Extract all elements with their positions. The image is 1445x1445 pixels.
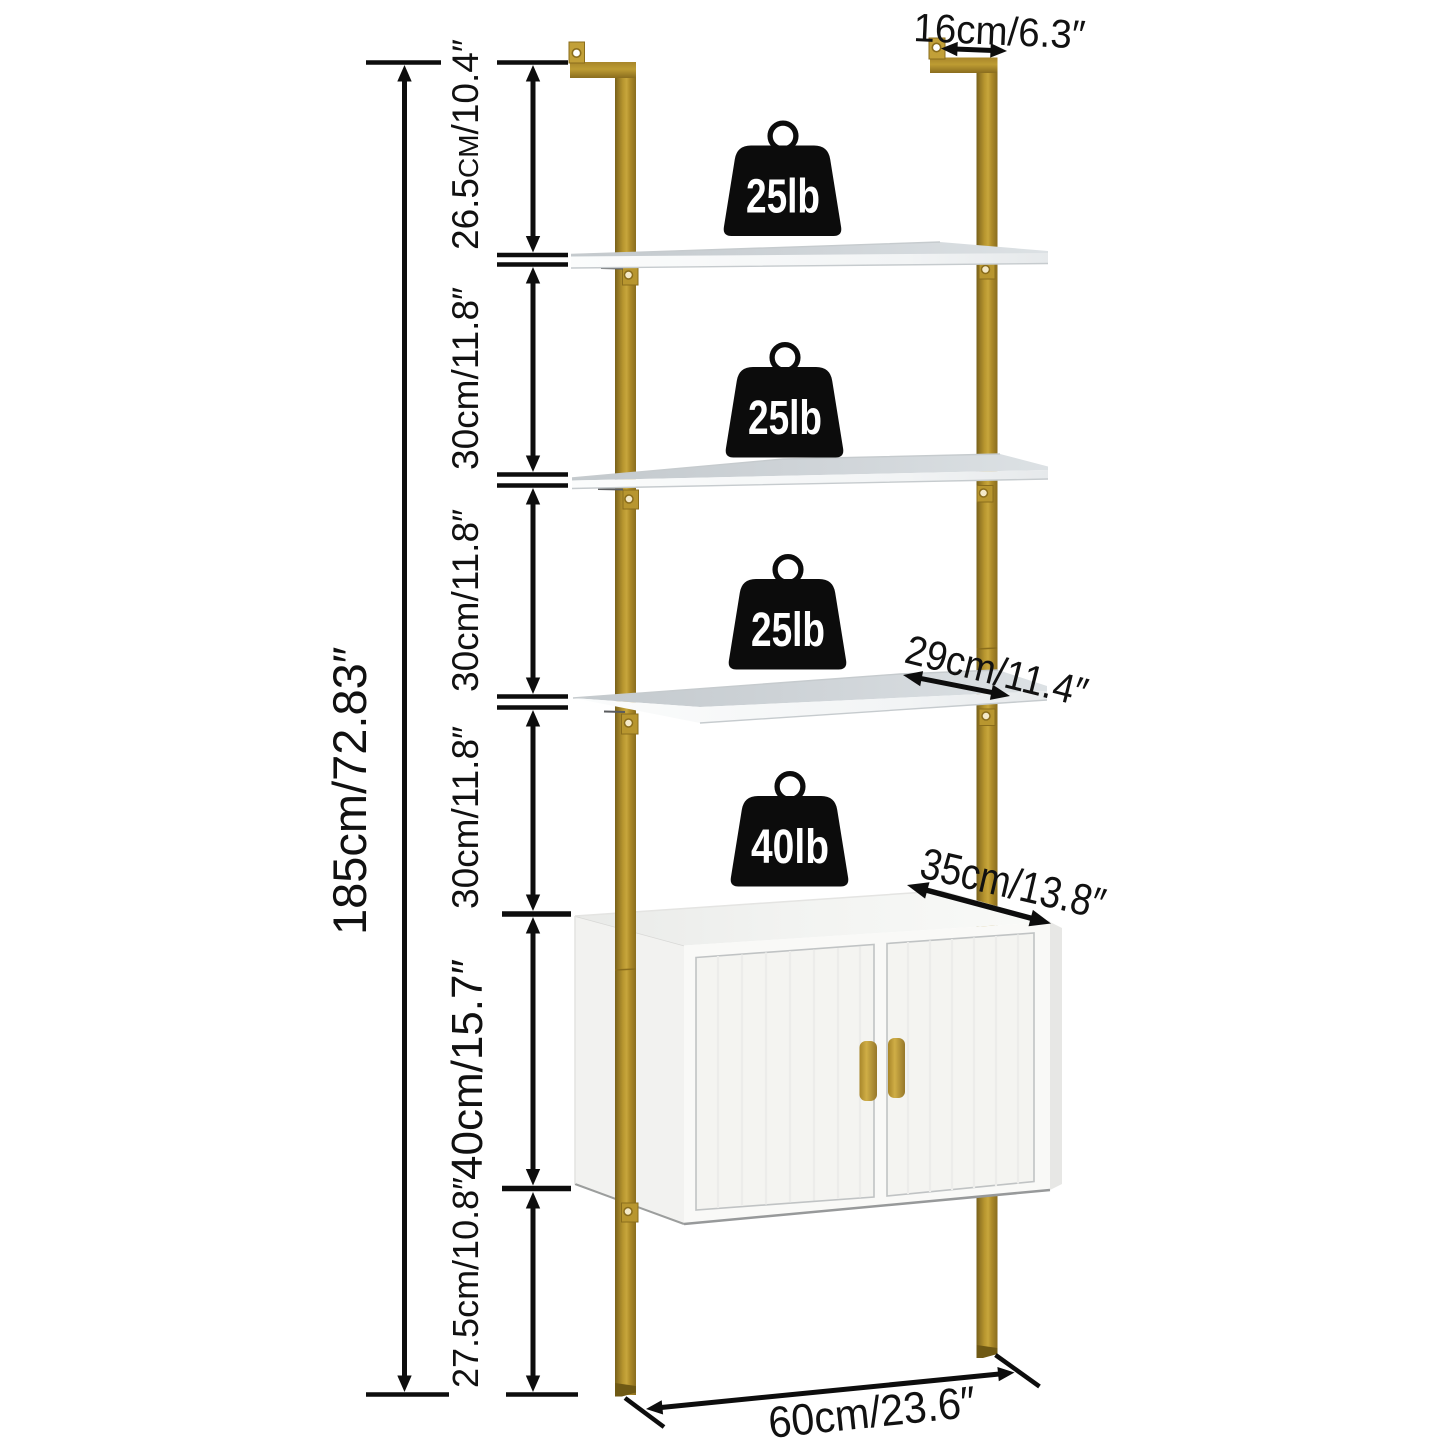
svg-text:30cm/11.8″: 30cm/11.8″ bbox=[445, 726, 486, 909]
svg-text:30cm/11.8″: 30cm/11.8″ bbox=[445, 287, 486, 470]
svg-text:40lb: 40lb bbox=[751, 821, 829, 874]
svg-text:30cm/11.8″: 30cm/11.8″ bbox=[445, 509, 486, 692]
svg-text:27.5cm/10.8″: 27.5cm/10.8″ bbox=[445, 1177, 486, 1388]
svg-text:25lb: 25lb bbox=[746, 171, 820, 224]
svg-text:40cm/15.7″: 40cm/15.7″ bbox=[443, 959, 492, 1180]
svg-text:185cm/72.83″: 185cm/72.83″ bbox=[323, 647, 376, 935]
svg-text:25lb: 25lb bbox=[751, 604, 825, 657]
svg-text:25lb: 25lb bbox=[748, 392, 822, 445]
svg-text:16cm/6.3″: 16cm/6.3″ bbox=[913, 6, 1087, 57]
